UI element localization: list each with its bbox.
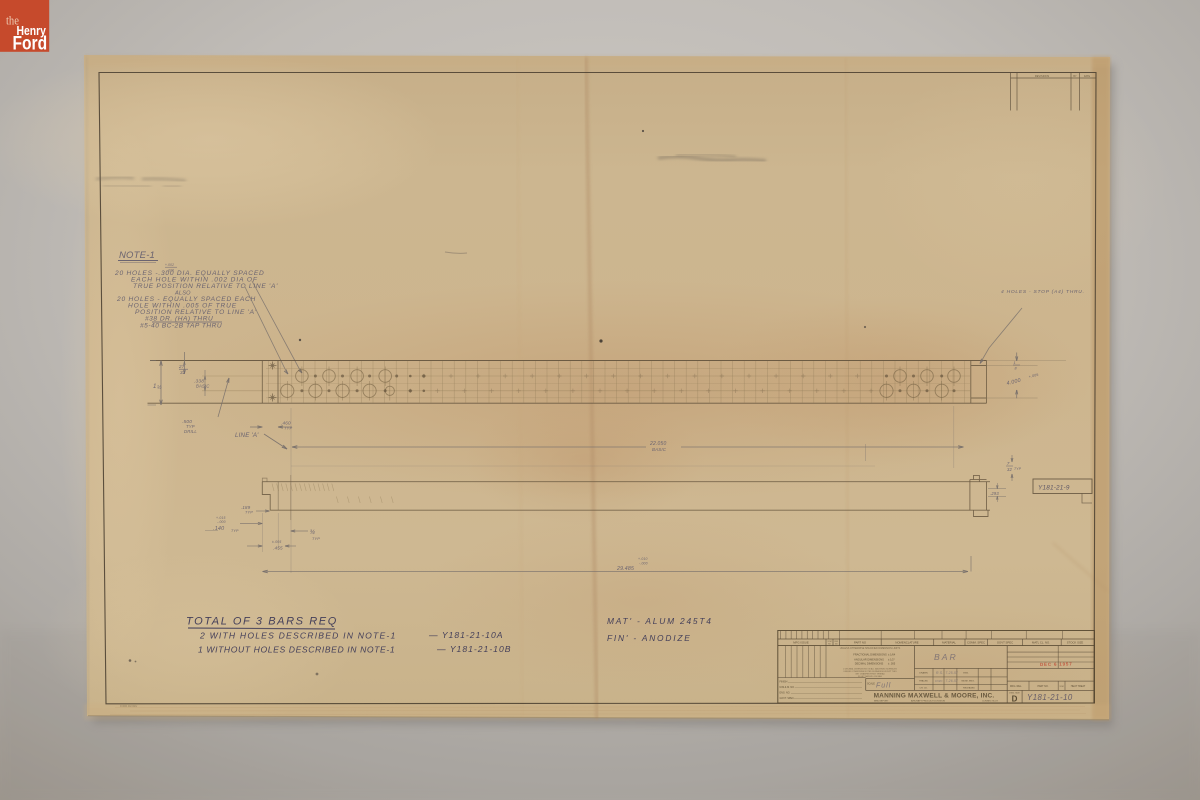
svg-text:ANGULAR DIMENSIONS: ANGULAR DIMENSIONS	[854, 657, 884, 661]
svg-text:BY: BY	[1073, 75, 1077, 78]
svg-text:DRAWN: DRAWN	[919, 672, 928, 675]
svg-text:+.010: +.010	[638, 557, 648, 561]
svg-text:ENG. NO.: ENG. NO.	[780, 691, 791, 694]
svg-text:Y181-21-9: Y181-21-9	[1038, 485, 1070, 492]
svg-text:MATERIAL: MATERIAL	[942, 641, 956, 645]
svg-text:½: ½	[157, 384, 162, 391]
svg-text:-.000: -.000	[217, 520, 226, 524]
svg-text:REVISIONS: REVISIONS	[1035, 74, 1049, 78]
svg-text:R.S.: R.S.	[936, 671, 943, 675]
svg-text:DEC 6 1957: DEC 6 1957	[1040, 661, 1073, 667]
svg-text:SYM: SYM	[1059, 686, 1064, 688]
svg-text:TYP: TYP	[245, 511, 253, 515]
svg-text:TRACED: TRACED	[919, 680, 928, 683]
svg-text:STOCK SIZE: STOCK SIZE	[1067, 641, 1084, 645]
svg-text:MANNING MAXWELL & MOORE, I: MANNING MAXWELL & MOORE, INC.	[874, 692, 995, 699]
svg-text:HEAT TREAT: HEAT TREAT	[1071, 685, 1086, 688]
svg-text:BASIC: BASIC	[652, 447, 667, 452]
svg-text:+.002: +.002	[165, 263, 174, 267]
svg-text:BRIDGEPORT: BRIDGEPORT	[874, 700, 889, 702]
svg-text:NOTE-1: NOTE-1	[119, 250, 155, 261]
svg-text:PART NO.: PART NO.	[1037, 685, 1048, 688]
svg-text:RELEASED: RELEASED	[963, 687, 975, 690]
svg-text:32: 32	[1007, 467, 1013, 472]
svg-text:±.005: ±.005	[272, 540, 281, 544]
svg-text:TYP: TYP	[1014, 467, 1022, 471]
svg-text:FORM 402 REV: FORM 402 REV	[120, 705, 138, 708]
svg-text:MFG. REL.: MFG. REL.	[1010, 685, 1022, 688]
svg-text:Ford: Ford	[12, 32, 47, 54]
svg-text:GOVT SPEC: GOVT SPEC	[997, 641, 1013, 645]
svg-text:1 WITHOUT HOLES DESCRIBED IN N: 1 WITHOUT HOLES DESCRIBED IN NOTE-1	[198, 645, 395, 655]
svg-text:4 HOLES - STOP (A4) THRU.: 4 HOLES - STOP (A4) THRU.	[1001, 289, 1085, 295]
svg-text:— Y181-21-10B: — Y181-21-10B	[436, 644, 511, 654]
svg-text:LINE 'A': LINE 'A'	[235, 432, 259, 439]
svg-text:.189: .189	[241, 505, 251, 510]
svg-text:GOVT. SPEC: GOVT. SPEC	[780, 697, 795, 700]
svg-text:Y181-21-10: Y181-21-10	[1027, 693, 1073, 702]
svg-text:BASIC: BASIC	[196, 384, 210, 389]
svg-text:CONNECTICUT: CONNECTICUT	[982, 700, 999, 702]
svg-text:UNLESS OTHERWISE SPECIFIED DIM: UNLESS OTHERWISE SPECIFIED DIMENSION LIM…	[840, 647, 901, 650]
svg-text:TOTAL OF 3 BARS REQ: TOTAL OF 3 BARS REQ	[186, 616, 338, 628]
svg-text:M.M.& M. NO.: M.M.& M. NO.	[780, 686, 795, 689]
svg-text:± 1/64: ± 1/64	[888, 653, 896, 657]
svg-text:DRILL: DRILL	[184, 429, 197, 434]
svg-text:29.485: 29.485	[616, 566, 634, 572]
svg-text:FIN' - ANODIZE: FIN' - ANODIZE	[607, 633, 692, 643]
svg-text:#5-40 BC-2B TAP THRU: #5-40 BC-2B TAP THRU	[140, 323, 222, 330]
svg-text:ENG.: ENG.	[963, 673, 969, 675]
svg-text:BAR: BAR	[934, 652, 958, 662]
svg-text:MDSE. ENG.: MDSE. ENG.	[962, 681, 975, 683]
svg-text:CH. CK.: CH. CK.	[919, 688, 927, 690]
svg-text:-.000: -.000	[639, 562, 648, 566]
svg-text:TYP: TYP	[231, 529, 239, 533]
svg-text:1: 1	[1014, 361, 1016, 365]
svg-text:MAT' - ALUM 245T4: MAT' - ALUM 245T4	[607, 616, 713, 626]
svg-text:7-26-57: 7-26-57	[946, 679, 958, 683]
svg-text:2 WITH HOLES DESCRIBED IN NOTE: 2 WITH HOLES DESCRIBED IN NOTE-1	[199, 631, 396, 641]
svg-text:COMM. SPEC: COMM. SPEC	[967, 641, 985, 645]
svg-text:32: 32	[180, 370, 186, 375]
svg-text:NOMENCLATURE: NOMENCLATURE	[895, 641, 918, 645]
svg-text:Full: Full	[876, 683, 891, 690]
svg-text:AIRCRAFT PRODUCTS DIVISION: AIRCRAFT PRODUCTS DIVISION	[911, 699, 945, 702]
svg-text:.293: .293	[990, 491, 999, 496]
svg-text:FILLET RADIUS .010 MAX: FILLET RADIUS .010 MAX	[858, 675, 883, 678]
svg-text:± .005: ± .005	[888, 662, 896, 666]
svg-text:27: 27	[178, 364, 185, 369]
svg-text:FRACTIONAL DIMENSIONS: FRACTIONAL DIMENSIONS	[853, 653, 887, 657]
svg-text:DECIMAL DIMENSIONS: DECIMAL DIMENSIONS	[855, 662, 884, 666]
svg-text:SCALE: SCALE	[867, 683, 875, 686]
svg-text:TYP: TYP	[312, 537, 320, 541]
svg-text:D: D	[1012, 695, 1018, 704]
svg-text:7-25-57: 7-25-57	[946, 671, 958, 675]
svg-text:#38 DR. (HA) THRU: #38 DR. (HA) THRU	[145, 316, 213, 323]
svg-text:DATE: DATE	[1084, 75, 1091, 78]
svg-text:MFG ISSUE: MFG ISSUE	[793, 641, 809, 645]
svg-text:± 1/2°: ± 1/2°	[888, 657, 895, 661]
svg-text:¾: ¾	[310, 529, 316, 536]
svg-text:— Y181-21-10A: — Y181-21-10A	[428, 630, 503, 640]
svg-text:FINISH: FINISH	[780, 680, 788, 683]
svg-text:1: 1	[153, 384, 157, 390]
svg-text:PART NO: PART NO	[854, 641, 867, 645]
svg-text:CWC: CWC	[935, 679, 943, 683]
svg-text:MATL CL. NO.: MATL CL. NO.	[1032, 641, 1050, 645]
svg-text:.140: .140	[213, 526, 224, 532]
